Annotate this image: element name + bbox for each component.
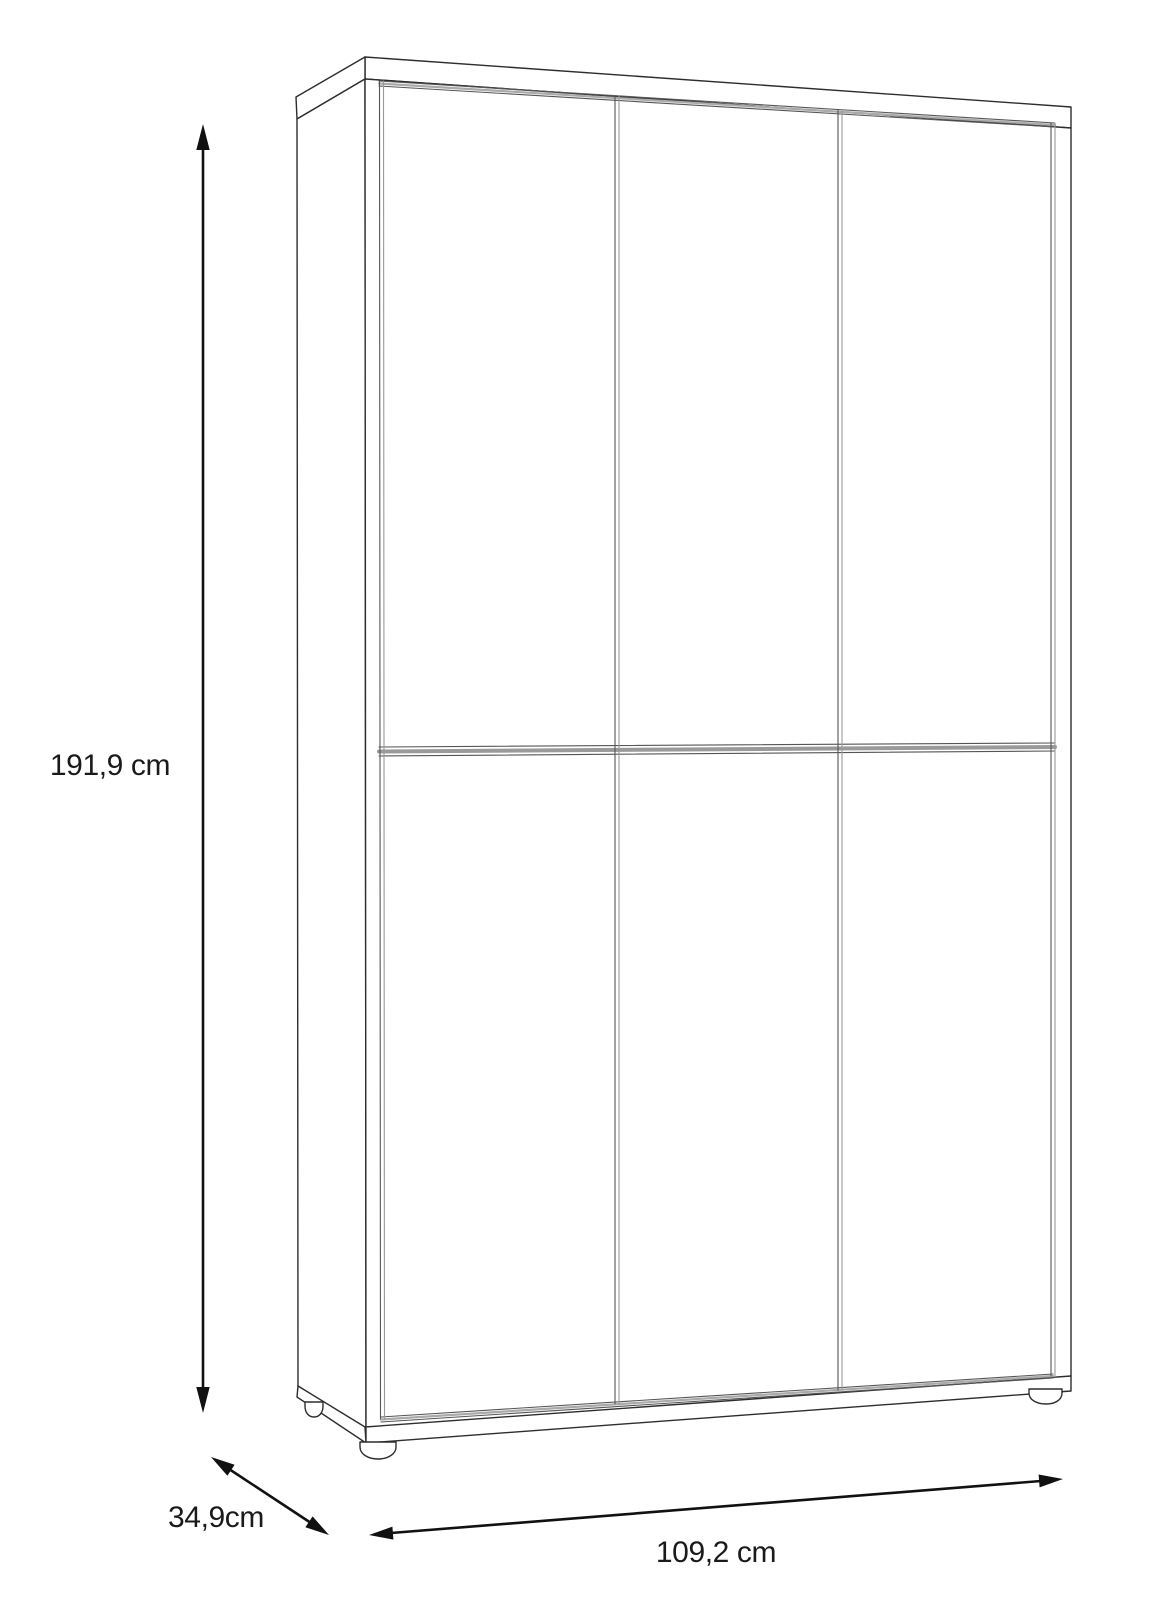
width-dimension-arrow xyxy=(369,1475,1063,1540)
cabinet-front-face xyxy=(365,79,1071,1443)
front-right-foot xyxy=(1029,1389,1062,1404)
cabinet-drawing xyxy=(296,57,1071,1459)
depth-dimension-label: 34,9cm xyxy=(168,1501,264,1534)
cabinet-diagram-canvas: 191,9 cm 34,9cm 109,2 cm xyxy=(0,0,1175,1600)
height-dimension-label: 191,9 cm xyxy=(50,749,170,782)
front-left-foot xyxy=(360,1442,396,1459)
height-dimension-arrow xyxy=(196,124,209,1413)
width-dimension-label: 109,2 cm xyxy=(656,1536,776,1569)
back-left-foot xyxy=(305,1402,323,1417)
furniture-dimension-diagram: 191,9 cm 34,9cm 109,2 cm xyxy=(0,0,1175,1600)
cabinet-left-side-panel xyxy=(297,79,366,1429)
